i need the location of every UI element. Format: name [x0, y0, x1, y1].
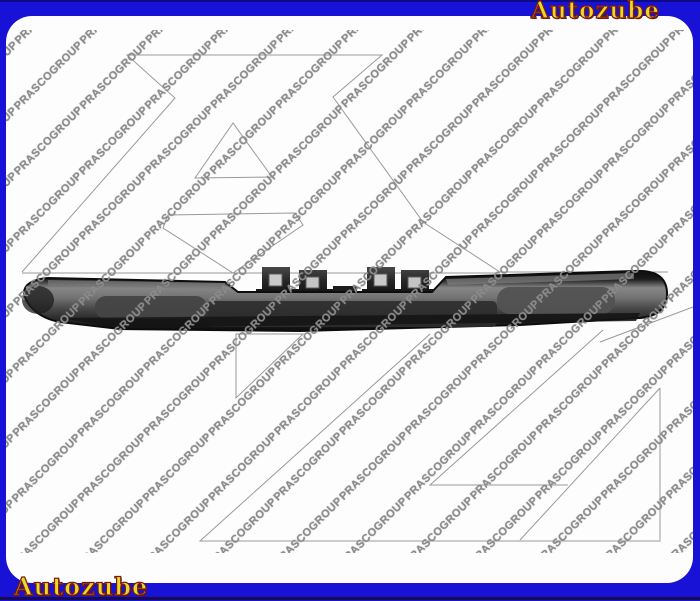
product-card: { "header": { "brand": "Autozube" }, "fo…	[0, 0, 700, 600]
brand-wordmark-top: Autozube	[531, 0, 660, 24]
brand-wordmark-bottom: Autozube	[14, 572, 148, 601]
watermark-layer: PRASCOGROUPPRASCOGROUPPRASCOGROUPPRASCOG…	[6, 30, 693, 553]
product-photo-panel: PRASCOGROUPPRASCOGROUPPRASCOGROUPPRASCOG…	[6, 16, 693, 583]
watermark-grid: PRASCOGROUPPRASCOGROUPPRASCOGROUPPRASCOG…	[6, 30, 693, 553]
